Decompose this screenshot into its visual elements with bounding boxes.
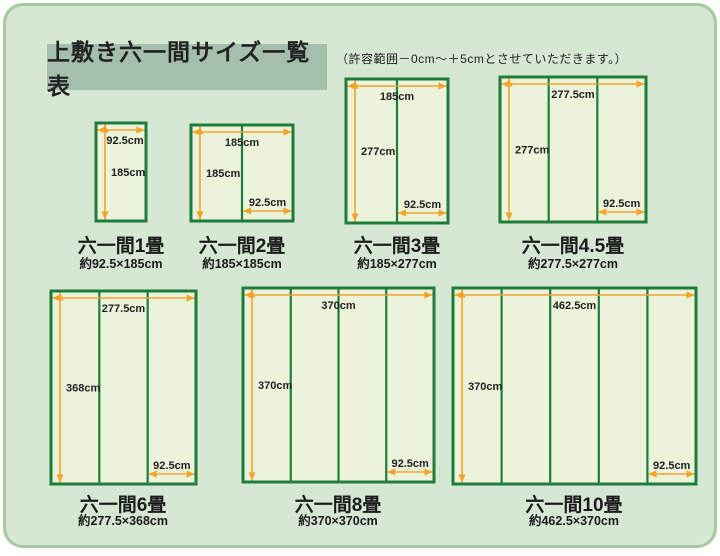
page-title: 上敷き六一間サイズ一覧表: [47, 33, 327, 101]
dimension-label: 370cm: [258, 380, 292, 392]
mat-diagram-1jo: 92.5cm185cm: [90, 117, 152, 227]
dimension-label: 92.5cm: [603, 198, 641, 210]
dimension-label: 185cm: [111, 167, 145, 179]
diagram-size: 約185×277cm: [297, 253, 497, 272]
dimension-label: 370cm: [321, 300, 355, 312]
diagram-size: 約277.5×368cm: [23, 510, 223, 529]
dimension-label: 92.5cm: [391, 458, 429, 470]
title-box: 上敷き六一間サイズ一覧表: [47, 44, 327, 90]
dimension-label: 277cm: [361, 146, 395, 158]
mat-diagram-2jo: 185cm185cm92.5cm: [185, 119, 299, 227]
dimension-label: 92.5cm: [653, 460, 691, 472]
diagram-size: 約370×370cm: [238, 510, 438, 529]
dimension-label: 92.5cm: [404, 199, 442, 211]
dimension-label: 92.5cm: [153, 460, 191, 472]
diagram-size: 約277.5×277cm: [473, 253, 673, 272]
mat-diagram-8jo: 370cm370cm92.5cm: [237, 282, 440, 488]
dimension-label: 92.5cm: [106, 135, 144, 147]
dimension-label: 277cm: [515, 145, 549, 157]
mat-diagram-10jo: 462.5cm370cm92.5cm: [447, 282, 702, 490]
dimension-label: 277.5cm: [551, 89, 595, 101]
diagram-size: 約462.5×370cm: [474, 510, 674, 529]
dimension-label: 368cm: [66, 383, 100, 395]
content-panel: 上敷き六一間サイズ一覧表 （許容範囲－0cm～＋5cmとさせていただきます。） …: [3, 3, 717, 548]
dimension-label: 185cm: [206, 168, 240, 180]
mat-diagram-4-5jo: 277.5cm277cm92.5cm: [494, 71, 652, 228]
dimension-label: 92.5cm: [249, 197, 287, 209]
tolerance-note: （許容範囲－0cm～＋5cmとさせていただきます。）: [336, 50, 627, 67]
dimension-label: 277.5cm: [102, 303, 146, 315]
dimension-label: 185cm: [380, 91, 414, 103]
dimension-label: 462.5cm: [553, 300, 597, 312]
mat-diagram-6jo: 277.5cm368cm92.5cm: [45, 285, 202, 490]
mat-diagram-3jo: 185cm277cm92.5cm: [340, 73, 454, 229]
dimension-label: 370cm: [468, 381, 502, 393]
dimension-label: 185cm: [225, 137, 259, 149]
